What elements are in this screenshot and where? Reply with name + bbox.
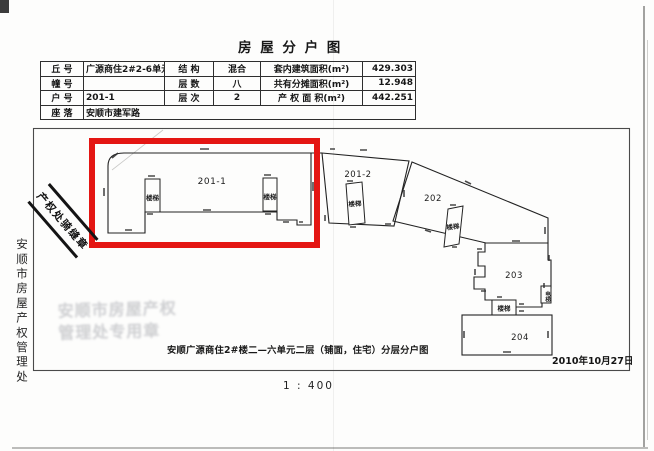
unit-label-203: 203	[505, 271, 523, 281]
stair-label-2: 楼梯	[264, 192, 278, 201]
stair-label-4: 楼梯	[446, 221, 461, 232]
elevator-label: 电梯	[542, 288, 551, 304]
unit-label-202: 202	[424, 194, 442, 204]
unit-201-2-outline	[322, 153, 409, 226]
unit-201-1-outline	[108, 153, 311, 233]
stair-label-1: 楼梯	[146, 193, 160, 202]
unit-label-204: 204	[511, 333, 529, 343]
unit-202-outline	[393, 162, 548, 243]
stair-label-5: 楼梯	[498, 304, 512, 313]
date-label: 2010年10月27日	[552, 353, 633, 367]
office-name-vertical: 安顺市房屋产权管理处	[14, 238, 30, 385]
stair-label-3: 楼梯	[348, 199, 362, 209]
crease-line	[112, 130, 163, 170]
unit-label-201-2: 201-2	[344, 170, 371, 180]
unit-label-201-1: 201-1	[198, 177, 227, 187]
faint-stamp-line1: 安顺市房屋产权	[57, 297, 176, 322]
faint-stamp: 安顺市房屋产权 管理处专用章	[57, 297, 176, 344]
unit-204-outline	[462, 315, 552, 355]
plan-caption: 安顺广源商住2#楼二—六单元二层（铺面，住宅）分层分户图	[167, 342, 429, 356]
scanned-document-page: 房 屋 分 户 图 丘 号 广源商住2#2-6单元 结 构 混合 套内建筑面积(…	[0, 0, 654, 451]
faint-stamp-line2: 管理处专用章	[58, 319, 177, 344]
scale-label: 1 : 400	[283, 380, 334, 392]
